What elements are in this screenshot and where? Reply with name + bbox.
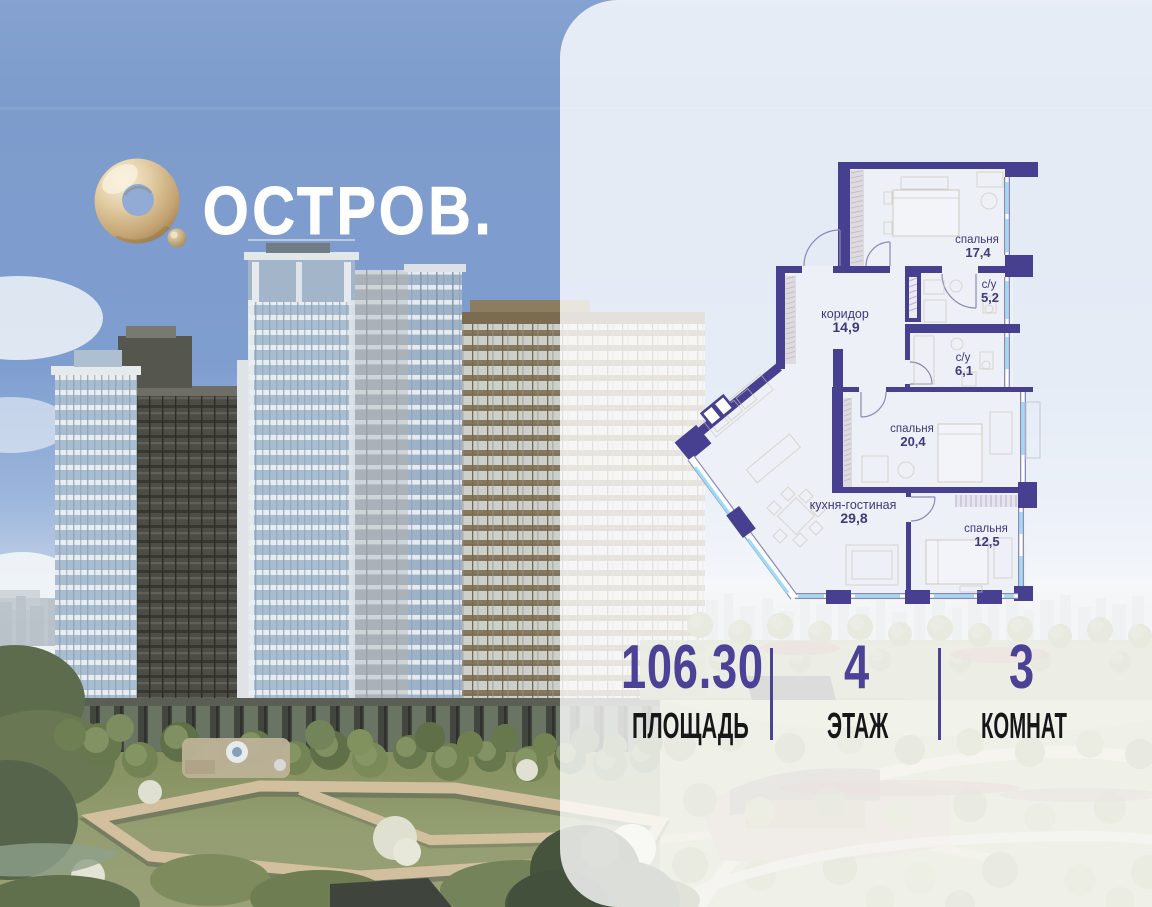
svg-text:6,1: 6,1 [955, 363, 973, 378]
svg-text:20,4: 20,4 [900, 434, 926, 449]
svg-text:12,5: 12,5 [974, 534, 999, 549]
svg-text:17,4: 17,4 [965, 245, 991, 260]
svg-text:29,8: 29,8 [840, 510, 867, 526]
svg-text:5,2: 5,2 [981, 290, 999, 305]
svg-text:14,9: 14,9 [832, 319, 859, 335]
svg-text:ОСТРОВ.: ОСТРОВ. [203, 172, 495, 249]
